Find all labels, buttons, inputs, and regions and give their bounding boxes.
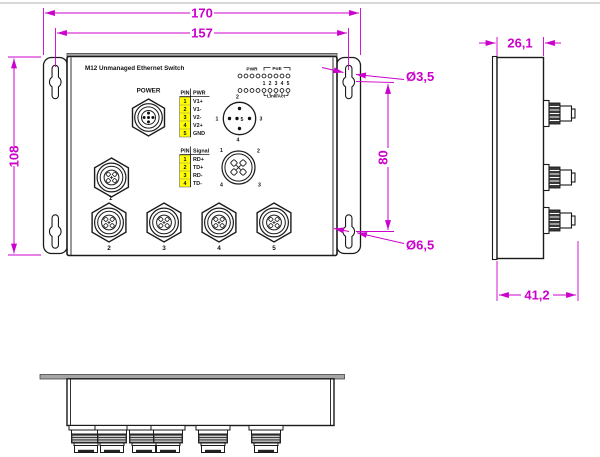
side-view [493,57,576,260]
bottom-connector-2b [151,426,185,453]
technical-drawing-page: M12 Unmanaged Ethernet Switch POWER 1 2 … [0,0,600,457]
power-pin2-label: 2 [236,95,239,101]
data-pin2-label: 2 [257,149,260,155]
power-label: POWER [137,88,161,95]
front-view: M12 Unmanaged Ethernet Switch POWER 1 2 … [44,54,361,256]
pwr-row4-pin: 4 [184,123,187,129]
signal-row3-val: RD- [193,173,203,179]
led-number-1: 1 [263,81,266,87]
pwr-row4-val: V2+ [193,123,203,129]
led-number-4: 4 [281,81,284,87]
dim-total-height-text: 108 [7,146,22,168]
data-pin3-label: 3 [258,183,261,189]
pwr-table-header-val: PWR [193,91,206,97]
port-3-label: 3 [162,245,166,252]
dim-hole-diameter-text: Ø6,5 [406,238,434,253]
pwr-row5-pin: 5 [184,131,187,137]
power-pin4-label: 4 [237,138,240,144]
pwr-row1-val: V1+ [193,99,203,105]
bottom-view [40,375,345,453]
bottom-connector-4 [249,426,283,453]
bottom-connector-1b [95,426,129,453]
pwr-row5-val: GND [193,131,205,137]
port-5-label: 5 [272,245,276,252]
pwr-row2-val: V1- [193,107,202,113]
pwr-row3-pin: 3 [184,115,187,121]
dim-slot-diameter-text: Ø3,5 [406,69,434,84]
dim-total-height: 108 [7,59,22,254]
led-poe-label: PoE [272,66,282,72]
port-2-label: 2 [107,245,111,252]
led-number-5: 5 [287,81,290,87]
pwr-row3-val: V2- [193,115,202,121]
dim-total-width: 170 [45,6,359,21]
dimension-drawing: M12 Unmanaged Ethernet Switch POWER 1 2 … [0,0,600,457]
signal-row2-pin: 2 [184,165,187,171]
side-port1-connector [544,165,576,191]
signal-table-header-val: Signal [193,149,210,155]
led-number-3: 3 [275,81,278,87]
signal-row1-val: RD+ [193,157,204,163]
dim-total-depth: 41,2 [499,288,576,303]
signal-table-header-pin: PIN [181,149,190,155]
led-row-bottom [238,89,290,93]
signal-row2-val: TD+ [193,165,203,171]
power-pin3-label: 3 [260,117,263,123]
data-pin1-label: 1 [220,148,223,154]
port-1-label: 1 [109,195,113,202]
device-title: M12 Unmanaged Ethernet Switch [85,65,185,72]
power-pin1-label: 1 [216,117,219,123]
pwr-table-header-pin: PIN [181,91,190,97]
dim-hole-vspacing-text: 80 [376,150,391,164]
dim-total-depth-text: 41,2 [524,288,549,303]
port-4-label: 4 [217,245,221,252]
led-row-top [238,74,290,78]
bottom-connector-3 [196,426,230,453]
signal-row4-val: TD- [193,181,202,187]
data-pin4-label: 4 [220,183,223,189]
dim-hole-spacing: 157 [57,26,347,41]
dim-body-depth-text: 26,1 [507,36,532,51]
side-body [497,58,544,259]
led-pwr-label: PWR [246,66,258,72]
bottom-body [67,379,334,426]
power-pin5-label: 5 [241,117,244,123]
side-bottom-row-connector [544,208,576,234]
signal-row3-pin: 3 [184,173,187,179]
pwr-row1-pin: 1 [184,99,187,105]
signal-row4-pin: 4 [184,181,187,187]
side-power-connector [544,101,576,127]
signal-row1-pin: 1 [184,157,187,163]
dim-body-depth: 26,1 [479,36,561,51]
dim-hole-spacing-text: 157 [191,26,213,41]
dim-hole-vertical-spacing: 80 [376,84,391,230]
dim-total-width-text: 170 [191,6,213,21]
pwr-row2-pin: 2 [184,107,187,113]
led-number-2: 2 [269,81,272,87]
led-linkact-label: Link/Act [267,94,286,99]
